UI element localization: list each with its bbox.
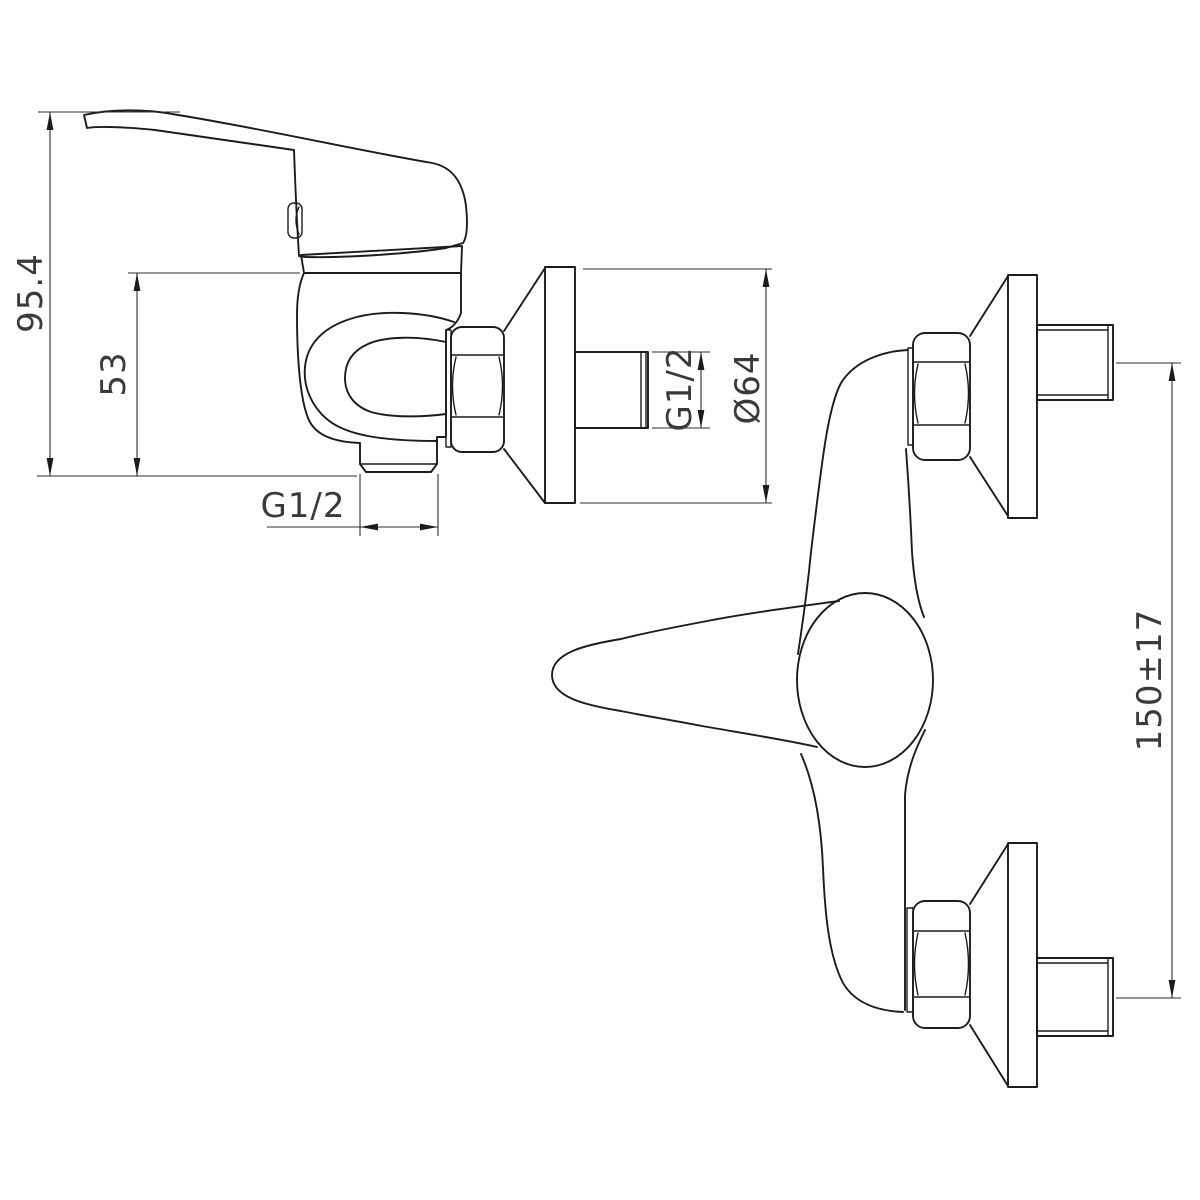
- handle-front-outline: [552, 601, 839, 747]
- dim-label-body-height: 53: [94, 351, 134, 396]
- shower-mixer-technical-drawing: 95.4 53 G1/2 G1/2: [0, 0, 1200, 1200]
- dim-inlet-thread: G1/2: [652, 346, 710, 431]
- arrowhead-right: [420, 524, 438, 531]
- flange-plate: [1008, 275, 1037, 518]
- dim-outlet-thread: G1/2: [260, 474, 438, 536]
- arrowhead-up: [1169, 363, 1176, 381]
- nut-facet-arc: [965, 933, 969, 995]
- lower-neck-left-edge: [801, 754, 903, 1012]
- dim-centers-distance: 150±17: [1116, 363, 1181, 998]
- dim-label-flange-diameter: Ø64: [728, 351, 768, 424]
- nut-outline: [913, 333, 970, 460]
- nut-outline: [451, 327, 504, 452]
- handle-button: [288, 203, 302, 238]
- elbow-outer-curve: [305, 313, 454, 441]
- flange-plate: [1008, 843, 1037, 1087]
- arrowhead-left: [360, 524, 378, 531]
- body-outline: [297, 273, 461, 472]
- dim-label-outlet-thread: G1/2: [260, 486, 345, 526]
- nut-facet-arc: [965, 364, 969, 423]
- dim-body-height: 53: [94, 273, 300, 476]
- handle-hub: [797, 593, 933, 767]
- nut-facet-arc: [915, 364, 919, 423]
- cone-edge: [970, 1025, 1008, 1086]
- nut-facet-arc: [499, 357, 503, 415]
- arrowhead-down: [1169, 980, 1176, 998]
- arrowhead-up: [134, 273, 141, 291]
- wall-flange: [504, 267, 575, 503]
- thread-stub: [1037, 958, 1113, 1036]
- nut-facet-arc: [453, 357, 457, 415]
- dim-label-overall-height: 95.4: [11, 253, 51, 333]
- technical-drawing-canvas: 95.4 53 G1/2 G1/2: [0, 0, 1200, 1200]
- upper-neck-right-edge: [906, 449, 924, 617]
- nut-outline: [913, 901, 970, 1028]
- arrowhead-up: [763, 269, 770, 287]
- inlet-thread-stub: [575, 352, 648, 428]
- arrowhead-up: [47, 112, 54, 130]
- arrowhead-down: [134, 458, 141, 476]
- lower-connection: [907, 843, 1113, 1087]
- stub-outline: [575, 352, 648, 428]
- flange-plate: [545, 267, 575, 503]
- upper-neck-left-edge: [798, 350, 908, 654]
- elbow-inner-curve: [345, 338, 446, 417]
- dim-label-centers-distance: 150±17: [1130, 609, 1170, 752]
- union-nut: [451, 327, 504, 452]
- cone-edge: [504, 268, 545, 331]
- cone-edge: [970, 844, 1008, 904]
- dim-overall-height: 95.4: [11, 112, 357, 476]
- arrowhead-down: [763, 485, 770, 503]
- side-view: 95.4 53 G1/2 G1/2: [11, 110, 772, 536]
- cone-edge: [970, 457, 1008, 516]
- thread-stub: [1037, 325, 1113, 400]
- nut-facet-arc: [915, 933, 919, 995]
- arrowhead-down: [47, 458, 54, 476]
- handle-outline: [84, 110, 467, 257]
- cone-edge: [970, 276, 1008, 336]
- upper-connection: [908, 275, 1113, 518]
- dim-label-inlet-thread: G1/2: [660, 346, 700, 431]
- cone-edge: [504, 449, 545, 503]
